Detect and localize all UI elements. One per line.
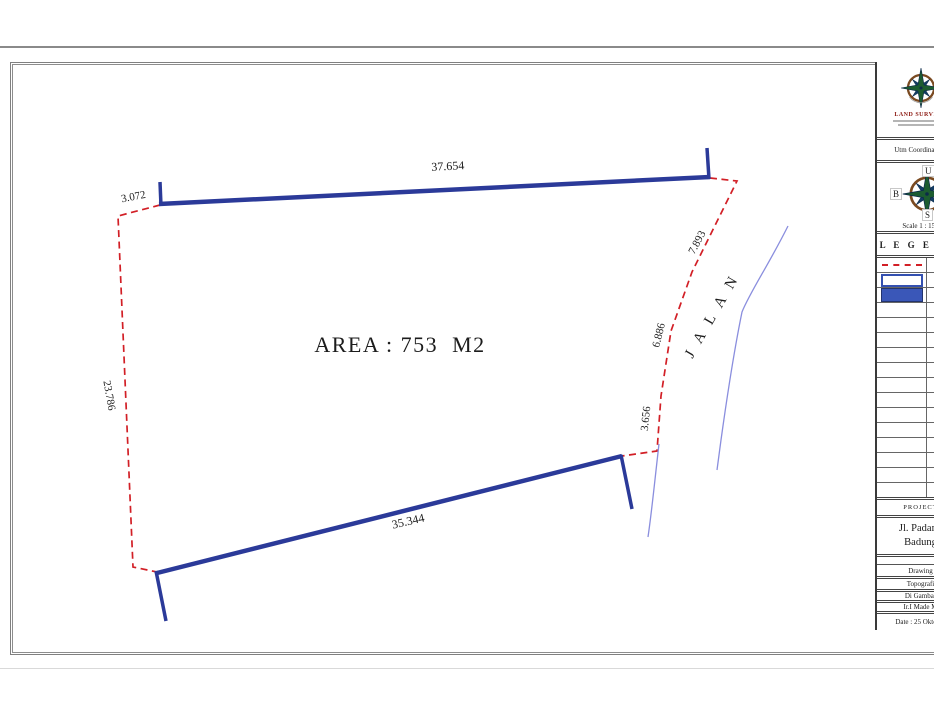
- project-header: PROJECT: [877, 500, 934, 518]
- legend-table: [877, 258, 934, 500]
- compass-west-letter: B: [890, 188, 902, 200]
- logo-fine-print-line: [898, 124, 934, 126]
- legend-header: L E G E N D: [877, 234, 934, 258]
- legend-empty-row: [877, 438, 934, 453]
- legend-empty-row: [877, 468, 934, 483]
- legend-row-open-rect: [877, 273, 934, 288]
- legend-row-boundary: [877, 258, 934, 273]
- dimension-right-middle: 6.886: [650, 321, 668, 348]
- project-address-box: Jl. Padang Badung: [877, 518, 934, 557]
- logo-fine-print-line: [893, 120, 934, 122]
- legend-empty-row: [877, 363, 934, 378]
- north-wall-solid-line: [159, 177, 710, 204]
- title-block: LAND SURVEYS Utm Coordinate & U B S T Sc…: [875, 62, 934, 630]
- dimension-left: 23.786: [100, 380, 117, 412]
- north-wall-end-ticks: [160, 148, 709, 206]
- project-address-line2: Badung: [904, 536, 934, 550]
- compass-south-letter: S: [922, 209, 933, 221]
- legend-empty-row: [877, 393, 934, 408]
- compass-logo-icon: [898, 65, 934, 111]
- info-row-di-gambar: Di Gambar: [877, 592, 934, 603]
- road-label: J A L A N: [682, 271, 743, 361]
- legend-empty-row: [877, 318, 934, 333]
- surveyor-logo-box: LAND SURVEYS: [877, 62, 934, 140]
- legend-empty-row: [877, 453, 934, 468]
- legend-filled-rect-symbol: [881, 288, 923, 302]
- site-plan-drawing: AREA : 753 M2 37.654 3.072 23.786 7.893 …: [0, 0, 934, 720]
- road-edge-line-right: [717, 226, 788, 470]
- compass-north-letter: U: [922, 165, 934, 177]
- area-label: AREA : 753 M2: [314, 332, 485, 357]
- north-compass-box: U B S T Scale 1 : 150: [877, 163, 934, 234]
- legend-empty-row: [877, 303, 934, 318]
- surveyor-org-name: LAND SURVEYS: [894, 112, 934, 118]
- south-wall-end-ticks: [156, 455, 632, 621]
- legend-empty-row: [877, 333, 934, 348]
- dimension-right-upper: 7.893: [686, 228, 708, 256]
- legend-row-filled-rect: [877, 288, 934, 303]
- road-edge-line-left: [648, 444, 659, 537]
- dimension-top: 37.654: [431, 158, 465, 174]
- legend-empty-row: [877, 423, 934, 438]
- legend-empty-row: [877, 348, 934, 363]
- scale-label: Scale 1 : 150: [877, 222, 934, 230]
- title-block-spacer-row: [877, 557, 934, 565]
- legend-open-rect-symbol: [881, 274, 923, 287]
- legend-empty-row: [877, 483, 934, 497]
- info-row-topografi: Topografi: [877, 579, 934, 592]
- dimension-right-lower: 3.656: [639, 405, 654, 431]
- scanned-survey-page: { "drawing": { "area_label": "AREA : 753…: [0, 0, 934, 720]
- utm-coordinate-row: Utm Coordinate &: [877, 140, 934, 163]
- parcel-boundary-dashed-line: [118, 178, 737, 572]
- info-row-drawing: Drawing: [877, 565, 934, 579]
- dimension-top-left: 3.072: [120, 189, 147, 206]
- legend-dashed-line-symbol: [882, 264, 922, 266]
- info-row-date: Date : 25 Oktober: [877, 614, 934, 630]
- info-row-surveyor-name: Ir.I Made M: [877, 603, 934, 614]
- project-address-line1: Jl. Padang: [899, 522, 934, 536]
- legend-empty-row: [877, 408, 934, 423]
- south-wall-solid-line: [157, 456, 622, 573]
- legend-empty-row: [877, 378, 934, 393]
